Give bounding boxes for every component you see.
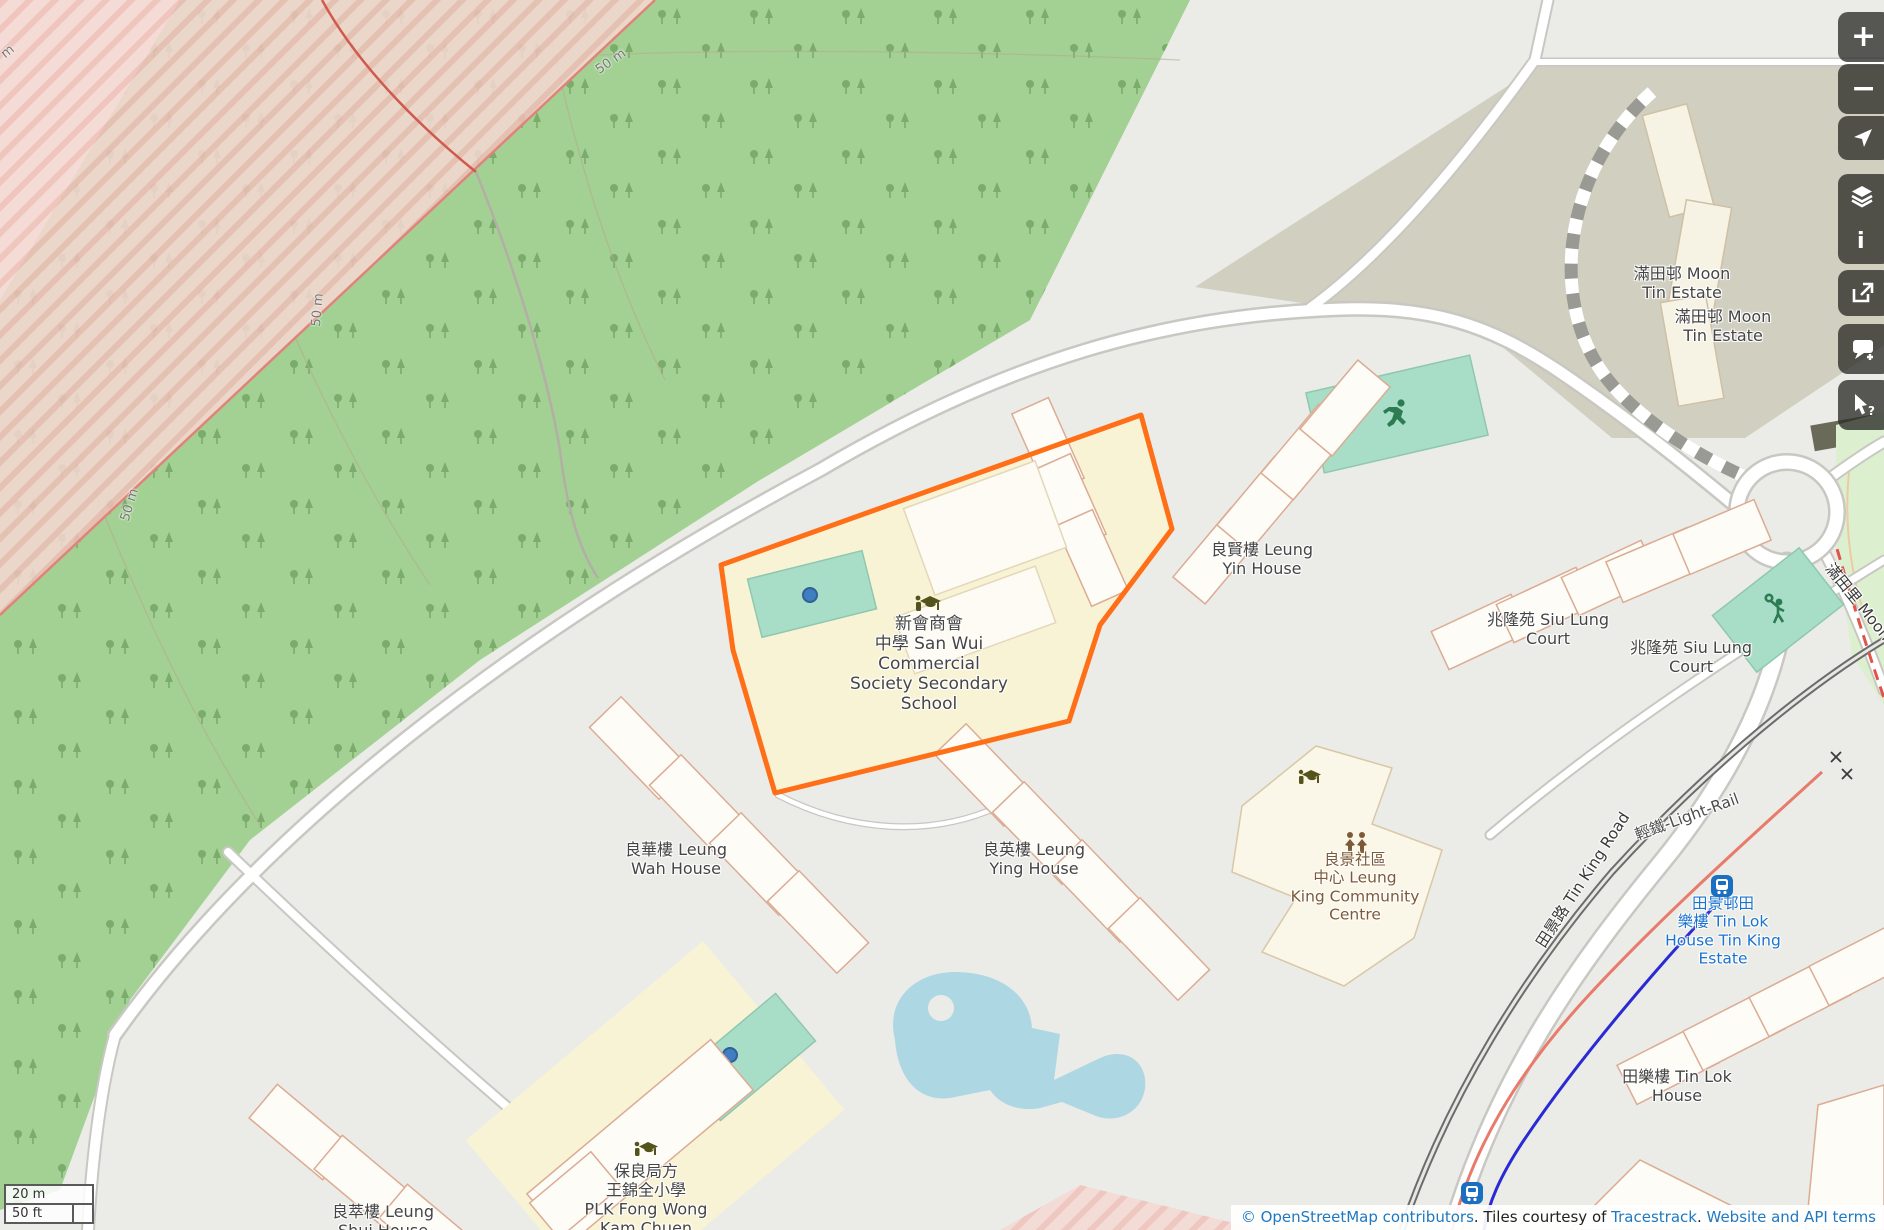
tracestrack-link[interactable]: Tracestrack — [1611, 1208, 1697, 1226]
layers-info-group: i — [1838, 174, 1884, 264]
level-crossing-icons — [1831, 752, 1852, 779]
layers-button[interactable] — [1838, 174, 1884, 219]
minus-icon: − — [1851, 74, 1876, 104]
plus-icon: + — [1851, 22, 1876, 52]
query-features-button[interactable]: ? — [1838, 380, 1884, 430]
scale-tick — [72, 1205, 74, 1222]
basemap — [0, 0, 1884, 1230]
share-icon — [1849, 279, 1877, 307]
attribution-bar: © OpenStreetMap contributors. Tiles cour… — [1231, 1205, 1884, 1230]
scale-bar: 20 m 50 ft — [4, 1184, 94, 1224]
swimming-pool — [893, 972, 1145, 1118]
attribution-text-2: . — [1697, 1208, 1707, 1226]
zoom-in-button[interactable]: + — [1838, 12, 1884, 62]
locate-arrow-icon — [1849, 124, 1877, 152]
zoom-out-button[interactable]: − — [1838, 64, 1884, 114]
scale-imperial-text: 50 ft — [12, 1206, 42, 1221]
query-cursor-icon: ? — [1849, 391, 1877, 419]
map-canvas[interactable]: 滿田邨 Moon Tin Estate 滿田邨 Moon Tin Estate … — [0, 0, 1884, 1230]
attribution-text-1: . Tiles courtesy of — [1474, 1208, 1611, 1226]
add-note-button[interactable] — [1838, 324, 1884, 374]
question-mark: ? — [1868, 404, 1875, 418]
info-icon: i — [1857, 229, 1865, 254]
scale-imperial: 50 ft — [4, 1203, 94, 1224]
share-button[interactable] — [1838, 270, 1884, 316]
osm-contributors-link[interactable]: © OpenStreetMap contributors — [1241, 1208, 1474, 1226]
terms-link[interactable]: Website and API terms — [1707, 1208, 1877, 1226]
construction-area — [1195, 62, 1884, 451]
layers-icon — [1849, 182, 1875, 212]
map-key-button[interactable]: i — [1838, 219, 1884, 264]
scale-metric: 20 m — [4, 1184, 94, 1205]
show-my-location-button[interactable] — [1838, 116, 1884, 160]
community-centre-building — [1232, 746, 1442, 986]
note-icon — [1849, 335, 1877, 363]
